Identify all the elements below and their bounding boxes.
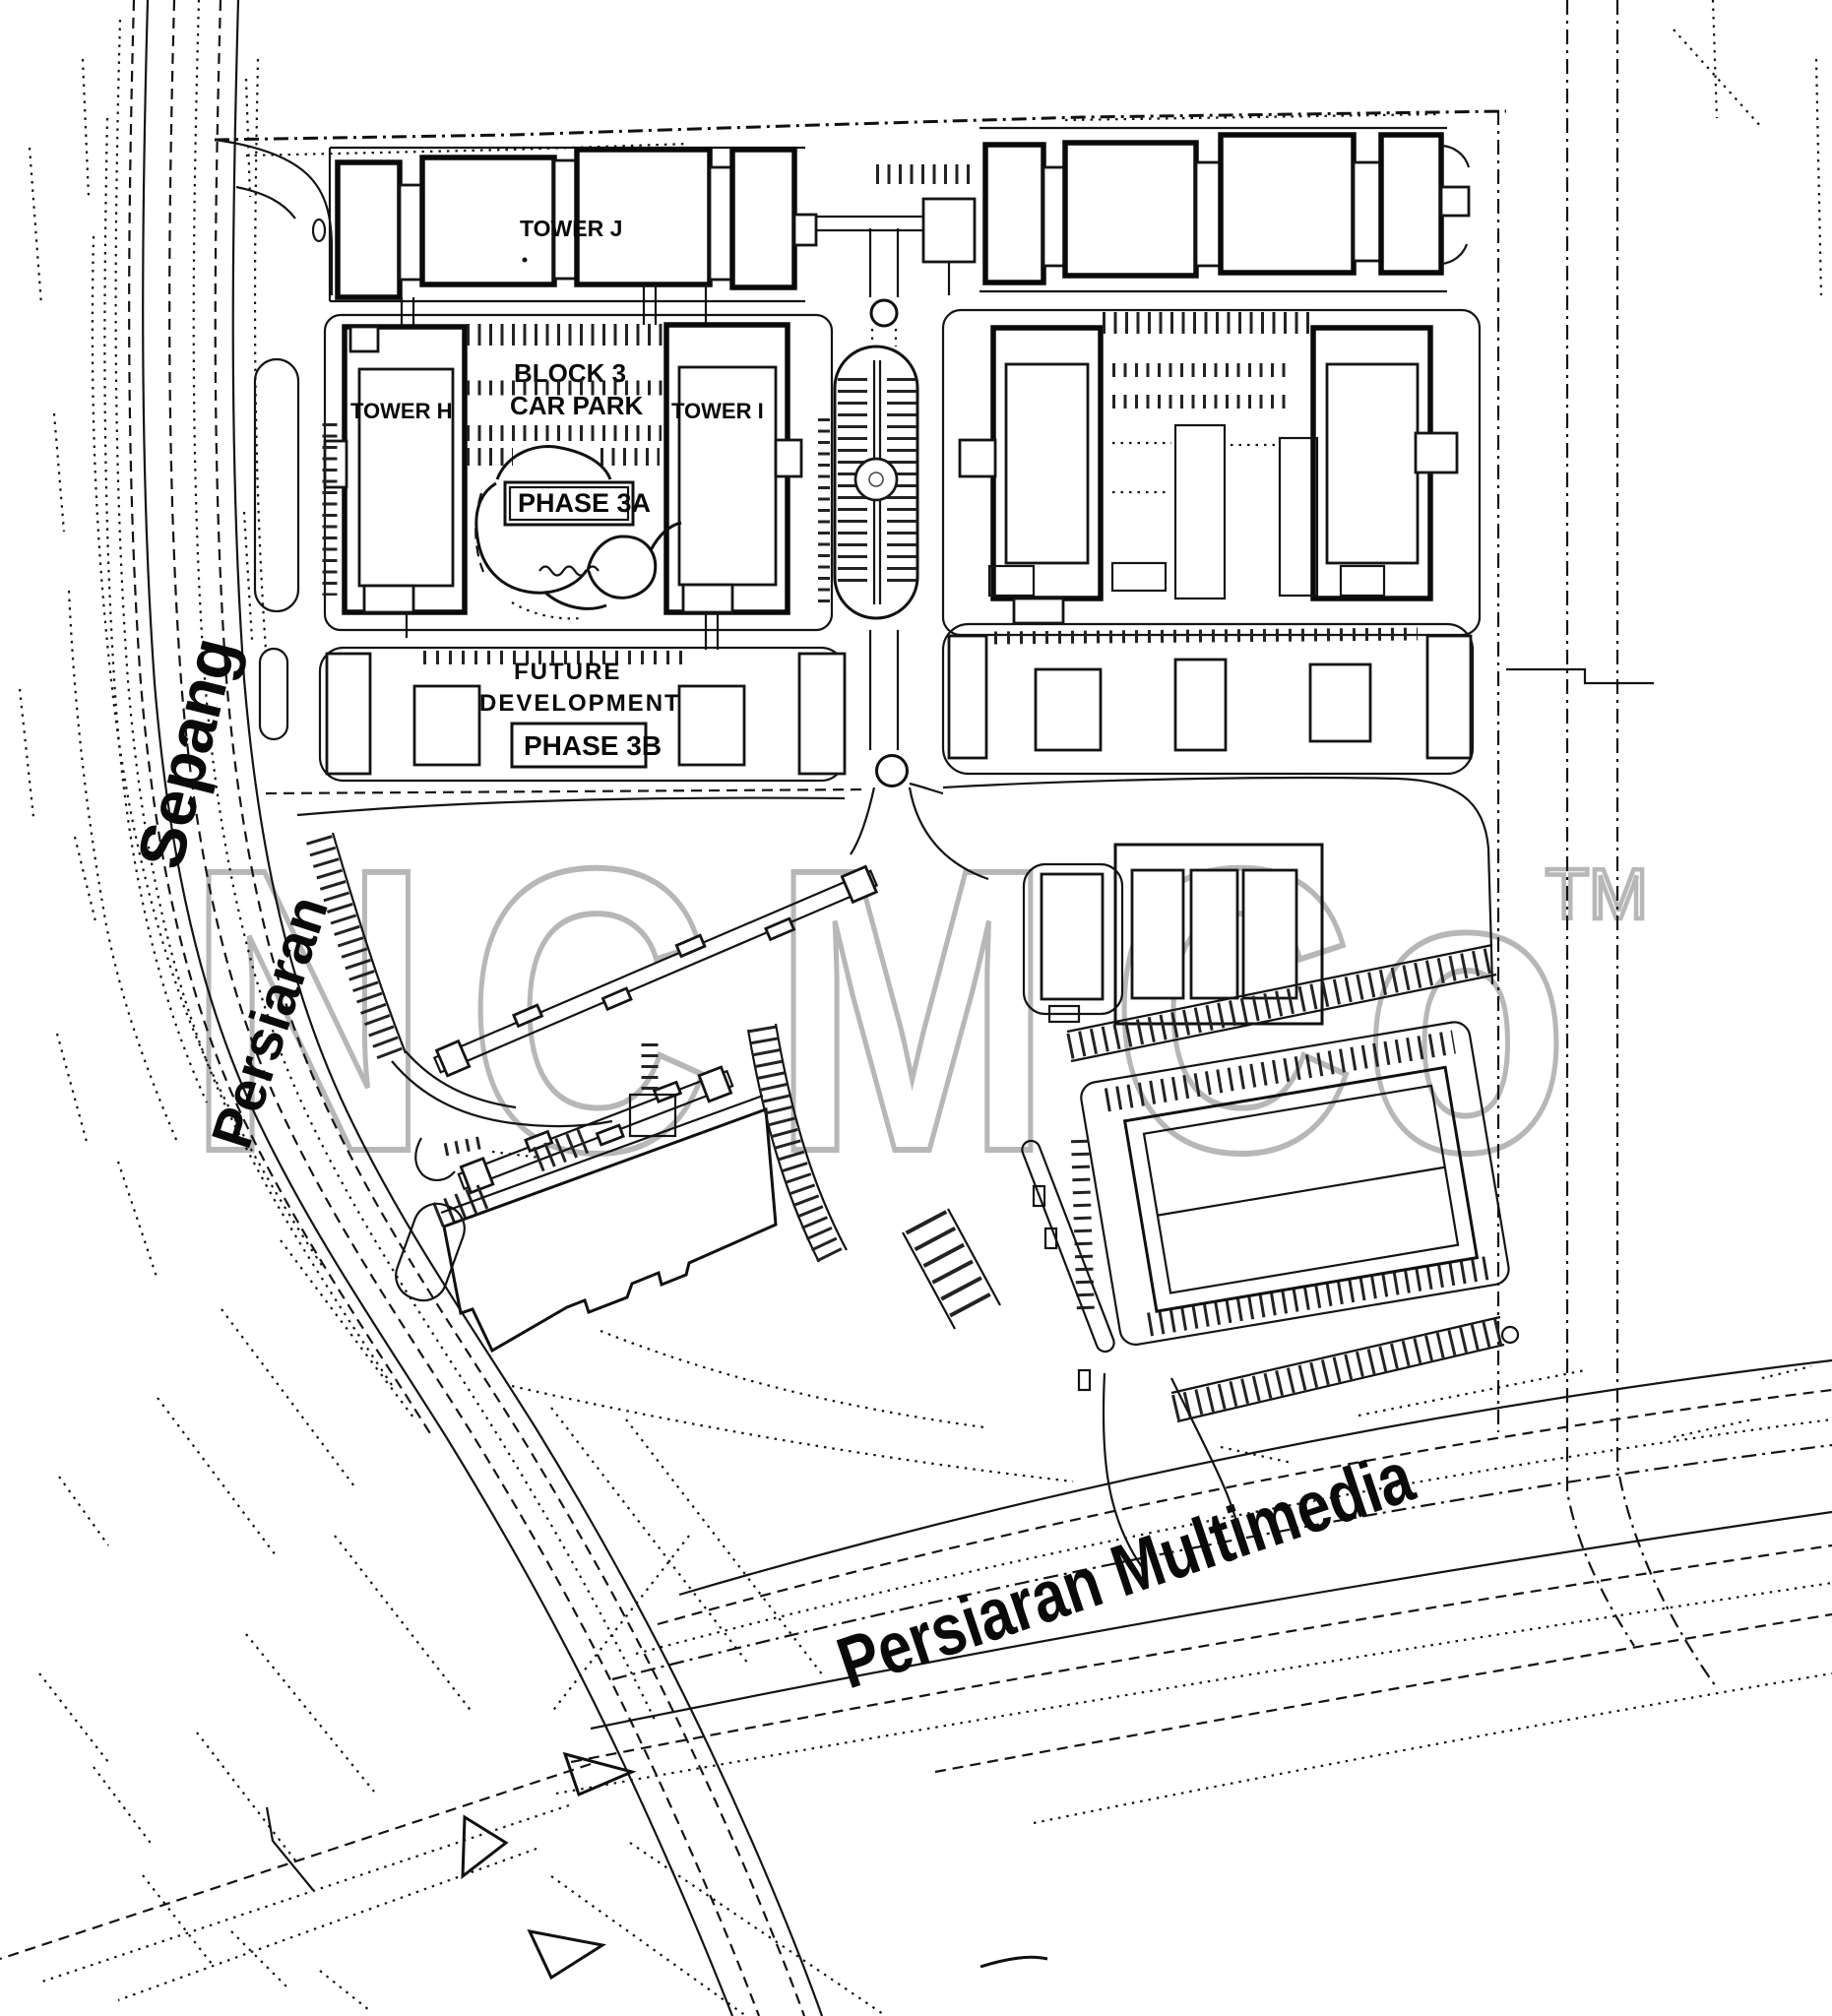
svg-text:C: C (467, 786, 712, 1236)
svg-text:o: o (1362, 786, 1569, 1236)
svg-text:N: N (186, 786, 431, 1236)
svg-text:FUTURE: FUTURE (514, 659, 621, 685)
svg-text:TOWER I: TOWER I (671, 399, 764, 423)
svg-text:PHASE 3B: PHASE 3B (524, 730, 662, 761)
svg-text:PHASE 3A: PHASE 3A (518, 488, 651, 518)
svg-text:CAR PARK: CAR PARK (510, 391, 644, 420)
svg-text:DEVELOPMENT: DEVELOPMENT (479, 690, 681, 717)
svg-text:M: M (771, 786, 1053, 1236)
svg-text:TOWER H: TOWER H (350, 399, 452, 423)
svg-text:TM: TM (1546, 855, 1648, 934)
svg-text:TOWER J: TOWER J (520, 216, 622, 241)
